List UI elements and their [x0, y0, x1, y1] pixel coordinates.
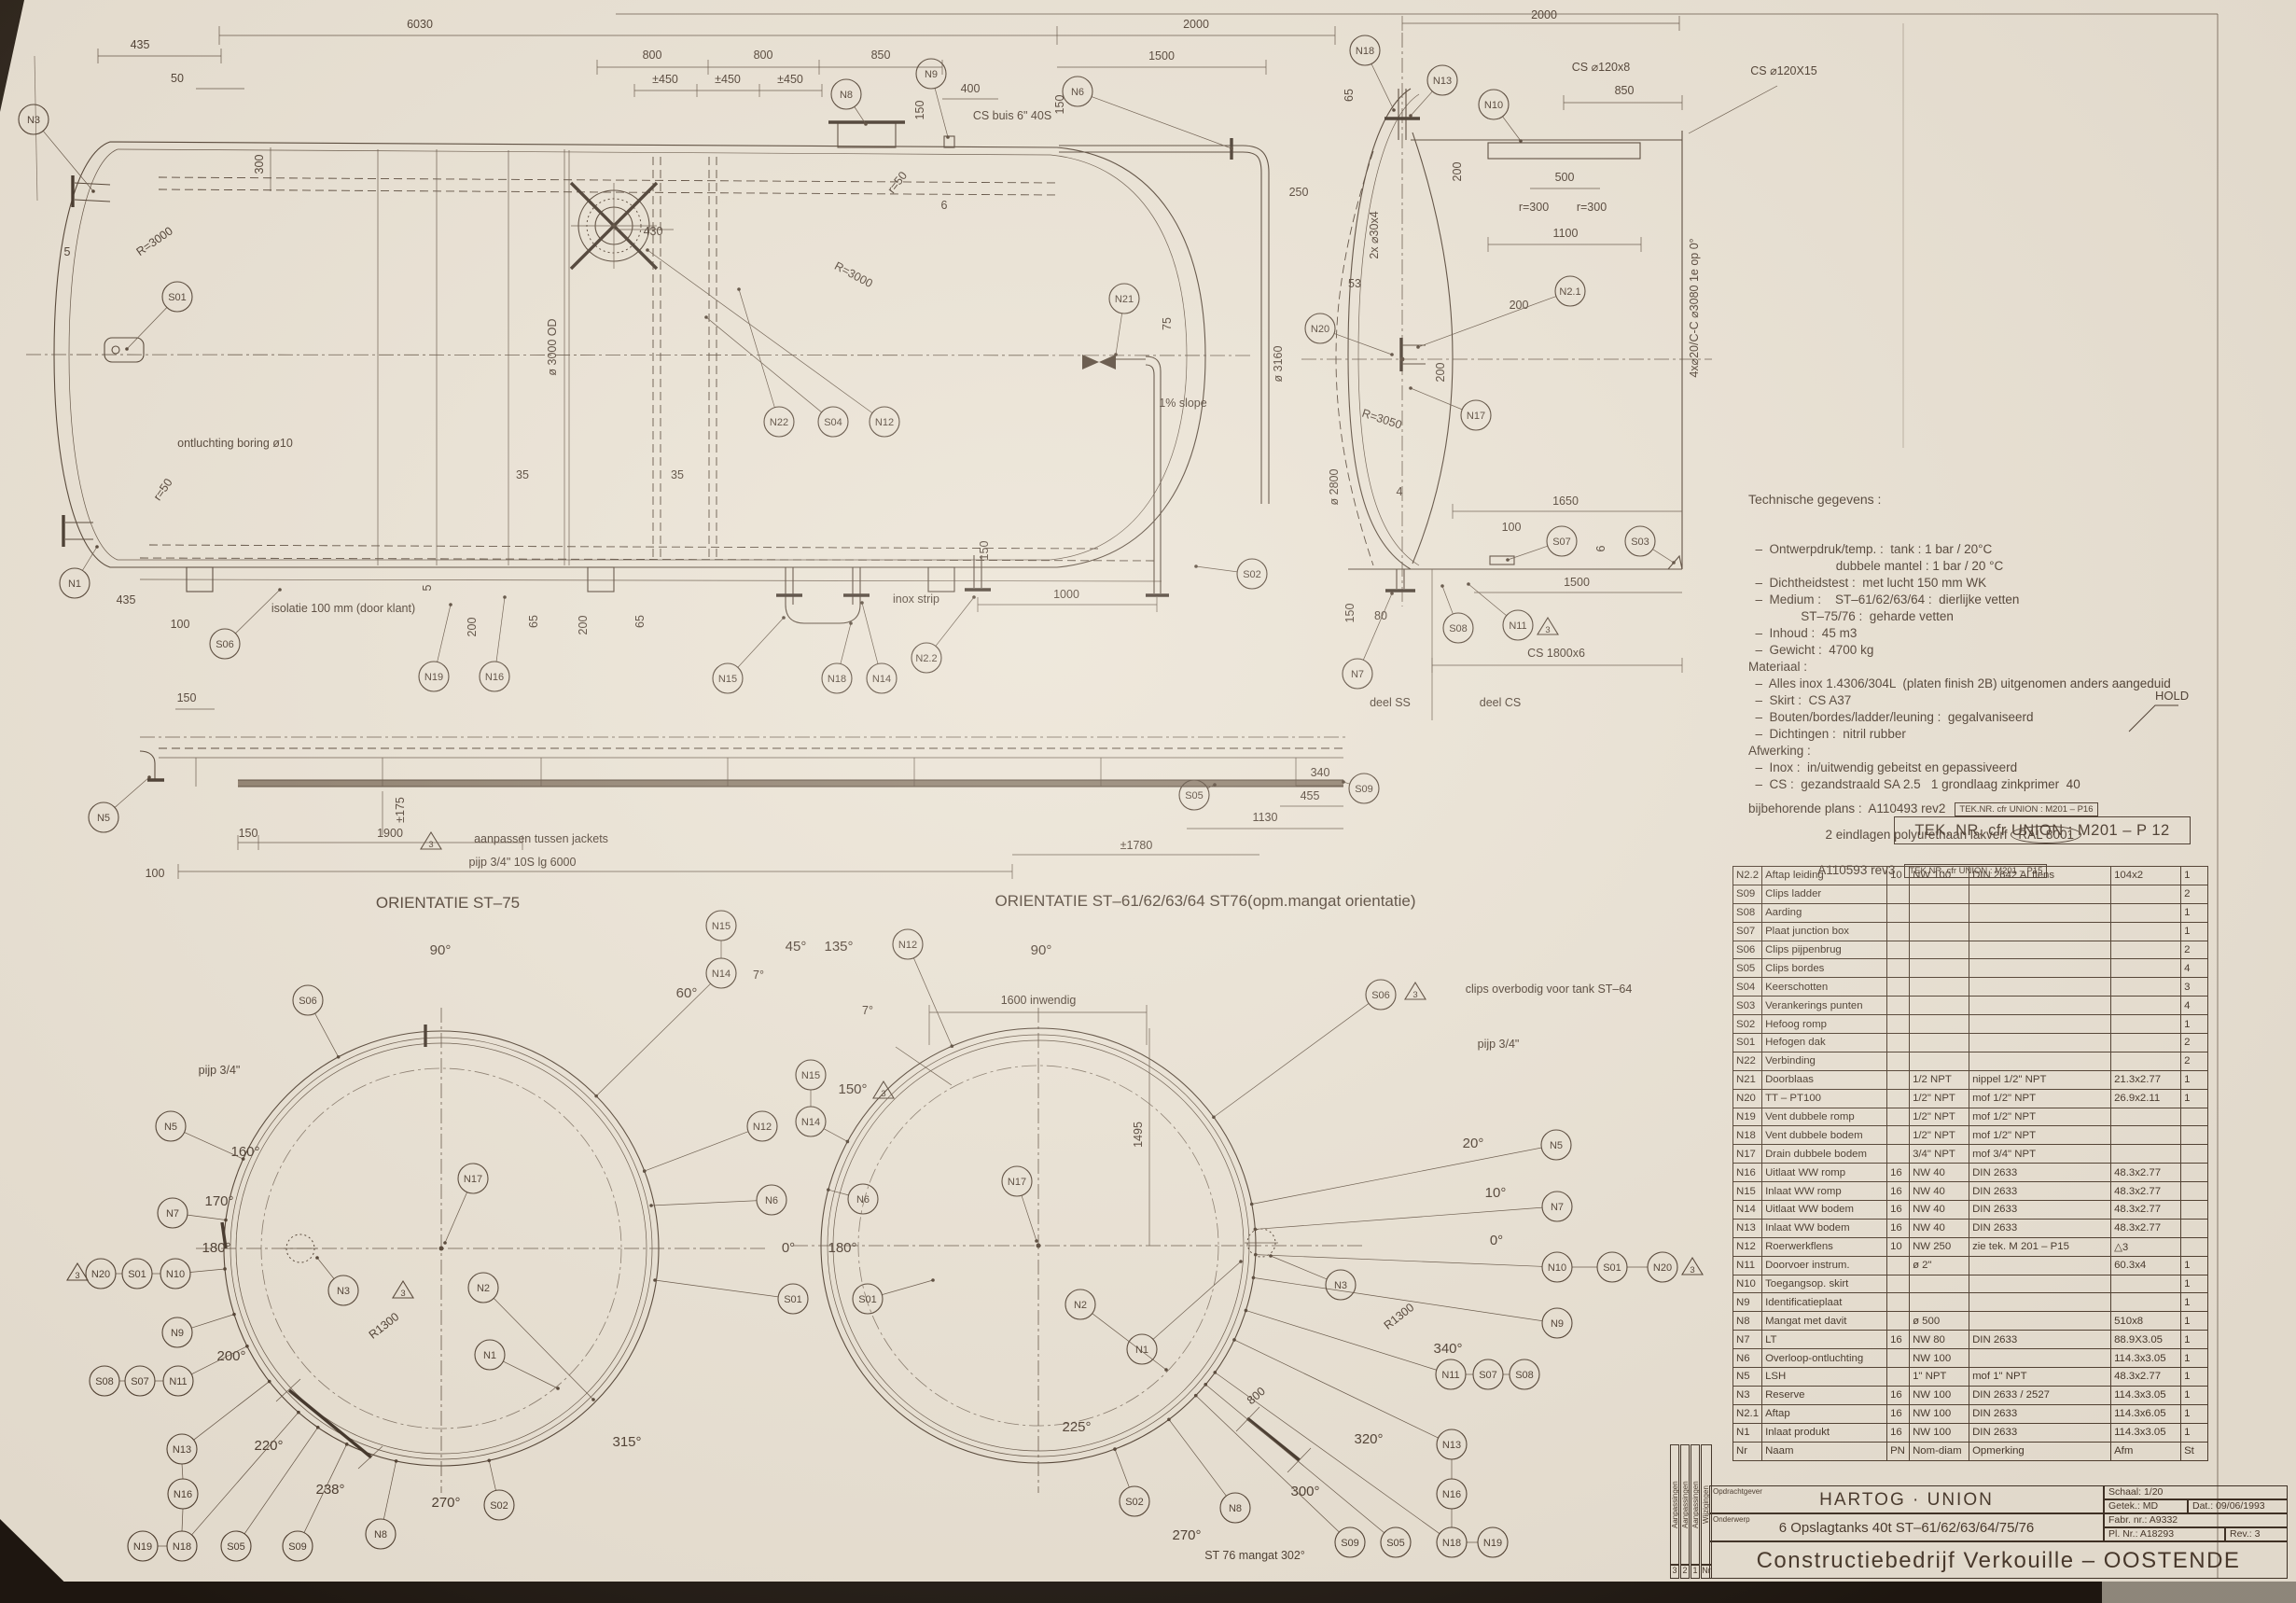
- table-cell: 1: [2181, 1256, 2208, 1275]
- table-cell: Inlaat WW bodem: [1762, 1219, 1887, 1237]
- callout-label: S09: [1355, 784, 1373, 795]
- dim-label: 800: [754, 49, 773, 62]
- leader-line: [841, 623, 851, 663]
- notes-line: dubbele mantel : 1 bar / 20 °C: [1748, 558, 2219, 575]
- leader-dot: [827, 1188, 830, 1192]
- table-cell: nippel 1/2" NPT: [1969, 1070, 2111, 1089]
- dim-label: aanpassen tussen jackets: [474, 832, 608, 845]
- table-cell: 1: [2181, 922, 2208, 941]
- callout-label: S09: [288, 1541, 307, 1553]
- table-cell: [1887, 1349, 1910, 1368]
- revision-triangle-digit: 3: [881, 1089, 885, 1099]
- dim-label: 200: [466, 618, 479, 637]
- table-cell: zie tek. M 201 – P15: [1969, 1237, 2111, 1256]
- table-cell: [1969, 1312, 2111, 1331]
- table-row: S07Plaat junction box1: [1733, 922, 2208, 941]
- dim-label: r=50: [885, 169, 911, 196]
- leader-dot: [125, 347, 129, 351]
- dim-label: R=3000: [832, 259, 875, 290]
- table-cell: mof 1/2" NPT: [1969, 1108, 2111, 1126]
- table-cell: [2111, 903, 2181, 922]
- dim-label: 500: [1555, 171, 1575, 184]
- leader-dot: [223, 1267, 227, 1271]
- leader-dot: [1213, 783, 1217, 787]
- leader-line: [1256, 1255, 1542, 1267]
- dim-label: 850: [871, 49, 891, 62]
- table-row: N7LT16NW 80DIN 263388.9X3.051: [1733, 1331, 2208, 1349]
- leader-dot: [649, 1204, 653, 1207]
- table-cell: Roerwerkflens: [1762, 1237, 1887, 1256]
- bottom-pipe-strip-view: [140, 709, 1348, 879]
- dim-label: ø 3160: [1272, 345, 1285, 382]
- manhole-n8: [838, 123, 896, 147]
- dim-label: 150: [978, 541, 991, 561]
- leader-dot: [1390, 353, 1394, 356]
- table-cell: PN: [1887, 1442, 1910, 1460]
- table-cell: 16: [1887, 1404, 1910, 1423]
- leader-line: [1334, 333, 1392, 355]
- leader-dot: [643, 1169, 647, 1173]
- table-cell: N3: [1733, 1386, 1762, 1404]
- dim-label: 65: [1343, 89, 1356, 102]
- dim-label: ø 3000 OD: [546, 318, 559, 375]
- leader-line: [192, 1413, 299, 1535]
- table-cell: 1/2" NPT: [1910, 1089, 1969, 1108]
- table-cell: N1: [1733, 1423, 1762, 1442]
- table-cell: [1887, 959, 1910, 978]
- main-side-view: [26, 26, 1335, 623]
- leader-line: [1196, 566, 1237, 572]
- callout-label: S08: [1515, 1370, 1534, 1381]
- table-cell: DIN 2633: [1969, 1423, 2111, 1442]
- revision-triangle-digit: 3: [1412, 990, 1417, 1000]
- callout-label: N16: [485, 672, 504, 683]
- leader-line: [1196, 1396, 1340, 1532]
- table-cell: [1969, 885, 2111, 903]
- dim-label: deel SS: [1370, 696, 1411, 709]
- table-cell: N17: [1733, 1145, 1762, 1164]
- table-cell: Uitlaat WW bodem: [1762, 1201, 1887, 1220]
- leader-dot: [1194, 565, 1198, 568]
- notes-line: ST–75/76 : geharde vetten: [1748, 608, 2219, 625]
- callout-label: N12: [875, 417, 894, 428]
- table-cell: S03: [1733, 997, 1762, 1015]
- table-cell: Aftap: [1762, 1404, 1887, 1423]
- callout-label: N7: [1351, 669, 1364, 680]
- table-cell: N2.2: [1733, 867, 1762, 885]
- table-cell: Identificatieplaat: [1762, 1293, 1887, 1312]
- dim-label: 1500: [1148, 49, 1175, 63]
- table-cell: [2181, 1237, 2208, 1256]
- dim-label: 435: [117, 593, 136, 606]
- table-cell: [1969, 922, 2111, 941]
- table-cell: ø 2": [1910, 1256, 1969, 1275]
- table-cell: [2111, 1015, 2181, 1034]
- dim-label: 320°: [1354, 1431, 1383, 1447]
- table-cell: N13: [1733, 1219, 1762, 1237]
- table-cell: NW 100: [1910, 1404, 1969, 1423]
- table-cell: Hefoog romp: [1762, 1015, 1887, 1034]
- leader-line: [1115, 1449, 1129, 1487]
- table-cell: N6: [1733, 1349, 1762, 1368]
- callout-label: N1: [483, 1350, 496, 1361]
- leader-line: [1652, 550, 1674, 563]
- dim-label: 270°: [1172, 1527, 1201, 1543]
- callout-label: N21: [1115, 294, 1134, 305]
- notes-line: – Alles inox 1.4306/304L (platen finish …: [1748, 676, 2219, 692]
- table-cell: [2111, 997, 2181, 1015]
- dim-label: ±450: [715, 73, 741, 86]
- table-cell: 114.3x6.05: [2111, 1404, 2181, 1423]
- table-cell: 1/2" NPT: [1910, 1126, 1969, 1145]
- dim-label: 250: [1289, 186, 1309, 199]
- dim-label: 2000: [1183, 18, 1209, 31]
- dim-label: 0°: [782, 1240, 795, 1256]
- callout-label: N18: [1356, 46, 1374, 57]
- table-cell: S07: [1733, 922, 1762, 941]
- table-cell: [1969, 1052, 2111, 1070]
- callout-label: N3: [27, 115, 40, 126]
- dim-label: 400: [961, 82, 981, 95]
- table-cell: 60.3x4: [2111, 1256, 2181, 1275]
- dim-label: R=3000: [134, 224, 175, 258]
- dim-label: 1130: [1253, 811, 1278, 824]
- table-cell: [1910, 978, 1969, 997]
- dim-label: 6: [941, 199, 948, 212]
- dim-label: CS 1800x6: [1527, 647, 1585, 660]
- leader-dot: [1342, 780, 1345, 784]
- leader-line: [655, 1280, 778, 1297]
- leader-line: [647, 250, 872, 413]
- leader-line: [190, 1269, 225, 1273]
- dim-label: 170°: [204, 1193, 233, 1209]
- callout-label: N6: [856, 1194, 870, 1206]
- callout-label: S06: [1371, 990, 1390, 1001]
- table-cell: 1: [2181, 1070, 2208, 1089]
- table-row: NrNaamPNNom-diamOpmerkingAfmSt: [1733, 1442, 2208, 1460]
- callout-label: N15: [801, 1070, 820, 1081]
- dim-label: 5: [421, 584, 434, 591]
- table-cell: Toegangsop. skirt: [1762, 1275, 1887, 1293]
- dim-label: pijp 3/4": [199, 1064, 241, 1077]
- table-cell: [1910, 997, 1969, 1015]
- scan-corner-bottom-left: [0, 1519, 86, 1603]
- table-cell: 16: [1887, 1423, 1910, 1442]
- table-cell: N15: [1733, 1182, 1762, 1201]
- ww-u-pipe: [776, 567, 870, 623]
- rev-row-number: 2: [1680, 1565, 1690, 1579]
- dim-label: 65: [633, 615, 647, 628]
- callout-label: N15: [718, 674, 737, 685]
- table-cell: [1910, 941, 1969, 959]
- table-cell: [1887, 1070, 1910, 1089]
- leader-dot: [1409, 386, 1412, 390]
- callout-label: S01: [1603, 1262, 1621, 1274]
- leader-dot: [91, 189, 95, 193]
- dim-label: ontluchting boring ø10: [177, 437, 293, 450]
- table-cell: Clips pijpenbrug: [1762, 941, 1887, 959]
- plan-box-1: TEK.NR. cfr UNION : M201 – P16: [1955, 802, 2097, 816]
- leader-dot: [449, 603, 452, 606]
- dim-label: 60°: [676, 985, 698, 1001]
- leader-line: [188, 1215, 226, 1220]
- dim-label: 35: [671, 468, 684, 481]
- table-cell: 1: [2181, 1312, 2208, 1331]
- table-cell: 1: [2181, 1368, 2208, 1387]
- leader-dot: [487, 1458, 491, 1462]
- table-cell: 16: [1887, 1219, 1910, 1237]
- leader-line: [496, 597, 505, 662]
- callout-label: N18: [828, 674, 846, 685]
- table-cell: [1910, 1015, 1969, 1034]
- table-cell: [1910, 959, 1969, 978]
- table-cell: [1969, 1256, 2111, 1275]
- leader-dot: [946, 135, 950, 139]
- table-row: N11Doorvoer instrum.ø 2"60.3x41: [1733, 1256, 2208, 1275]
- dim-label: 53: [1348, 277, 1361, 290]
- table-cell: S02: [1733, 1015, 1762, 1034]
- leader-dot: [1245, 1309, 1248, 1313]
- table-cell: DIN 2633 / 2527: [1969, 1386, 2111, 1404]
- callout-label: N3: [1334, 1280, 1347, 1291]
- leader-dot: [1035, 1239, 1038, 1243]
- leader-line: [1468, 584, 1507, 616]
- section-end-view: [1301, 16, 1777, 720]
- dim-label: 80: [1374, 609, 1387, 622]
- table-cell: [1887, 1089, 1910, 1108]
- dim-label: 200: [1451, 162, 1464, 182]
- callout-label: S03: [1631, 537, 1649, 548]
- table-row: S04Keerschotten3: [1733, 978, 2208, 997]
- dim-label: 0°: [1490, 1233, 1503, 1248]
- table-cell: Vent dubbele bodem: [1762, 1126, 1887, 1145]
- leader-line: [315, 1013, 339, 1057]
- dim-label: 75: [1161, 317, 1174, 330]
- leader-dot: [951, 1044, 954, 1048]
- leader-dot: [147, 775, 151, 779]
- callout-label: N5: [1550, 1140, 1563, 1151]
- leader-line: [651, 1201, 757, 1206]
- table-row: N13Inlaat WW bodem16NW 40DIN 263348.3x2.…: [1733, 1219, 2208, 1237]
- dim-label: 160°: [230, 1144, 259, 1160]
- dim-label: 455: [1301, 789, 1320, 802]
- table-cell: N21: [1733, 1070, 1762, 1089]
- table-cell: [1910, 1034, 1969, 1052]
- table-cell: Uitlaat WW romp: [1762, 1164, 1887, 1182]
- leader-dot: [849, 621, 853, 625]
- table-row: N9Identificatieplaat1: [1733, 1293, 2208, 1312]
- table-cell: Aarding: [1762, 903, 1887, 922]
- dim-label: 100: [1502, 521, 1522, 534]
- table-cell: 114.3x3.05: [2111, 1349, 2181, 1368]
- table-cell: [1887, 885, 1910, 903]
- callout-label: N14: [712, 969, 731, 980]
- table-cell: [1887, 941, 1910, 959]
- table-cell: 1: [2181, 1089, 2208, 1108]
- leader-dot: [1113, 1447, 1117, 1451]
- dim-label: r=300: [1519, 201, 1549, 214]
- callout-label: N13: [1442, 1440, 1461, 1451]
- table-cell: N7: [1733, 1331, 1762, 1349]
- table-cell: N16: [1733, 1164, 1762, 1182]
- table-cell: NW 40: [1910, 1164, 1969, 1182]
- callout-label: S02: [1125, 1497, 1144, 1508]
- table-cell: 1: [2181, 867, 2208, 885]
- table-row: N2.1Aftap16NW 100DIN 2633114.3x6.051: [1733, 1404, 2208, 1423]
- callout-label: S07: [1552, 537, 1571, 548]
- leader-dot: [1213, 1371, 1217, 1374]
- callout-label: N1: [1135, 1345, 1148, 1356]
- table-cell: 48.3x2.77: [2111, 1182, 2181, 1201]
- dim-label: 238°: [315, 1482, 344, 1498]
- company-name: Constructiebedrijf Verkouille – OOSTENDE: [1710, 1542, 2287, 1580]
- leader-dot: [782, 616, 786, 620]
- table-row: N15Inlaat WW romp16NW 40DIN 263348.3x2.7…: [1733, 1182, 2208, 1201]
- callout-label: S01: [858, 1294, 877, 1305]
- table-cell: 1/2 NPT: [1910, 1070, 1969, 1089]
- table-cell: [2111, 885, 2181, 903]
- callout-label: N18: [1442, 1538, 1461, 1549]
- dim-label: 225°: [1062, 1419, 1091, 1435]
- table-cell: LSH: [1762, 1368, 1887, 1387]
- dim-label: 430: [644, 225, 663, 238]
- callout-label: S07: [131, 1376, 149, 1387]
- leader-line: [1442, 586, 1453, 614]
- table-cell: 114.3x3.05: [2111, 1386, 2181, 1404]
- opdrachtgever-label: Opdrachtgever: [1713, 1487, 1762, 1496]
- table-cell: St: [2181, 1442, 2208, 1460]
- callout-label: N6: [1071, 87, 1084, 98]
- table-cell: 1: [2181, 903, 2208, 922]
- scan-edge-bottom-right: [2102, 1582, 2296, 1603]
- table-cell: [2111, 1145, 2181, 1164]
- leader-dot: [1250, 1203, 1254, 1206]
- dim-label: 200: [577, 616, 590, 635]
- leader-line: [1363, 593, 1392, 660]
- table-cell: [1887, 978, 1910, 997]
- table-cell: LT: [1762, 1331, 1887, 1349]
- table-cell: Overloop-ontluchting: [1762, 1349, 1887, 1368]
- table-cell: N18: [1733, 1126, 1762, 1145]
- table-cell: mof 1/2" NPT: [1969, 1126, 2111, 1145]
- table-row: N5LSH1" NPTmof 1" NPT48.3x2.771: [1733, 1368, 2208, 1387]
- table-cell: mof 3/4" NPT: [1969, 1145, 2111, 1164]
- rev-row-number: 1: [1691, 1565, 1700, 1579]
- table-cell: 16: [1887, 1164, 1910, 1182]
- callout-label: N20: [1653, 1262, 1672, 1274]
- dim-label: 200: [1434, 363, 1447, 383]
- table-cell: [1887, 1256, 1910, 1275]
- table-cell: 10: [1887, 867, 1910, 885]
- table-cell: S05: [1733, 959, 1762, 978]
- leader-dot: [95, 545, 99, 549]
- table-cell: [1969, 959, 2111, 978]
- dim-label: 2x ⌀30x4: [1368, 211, 1381, 258]
- leader-dot: [704, 315, 708, 319]
- table-cell: [1887, 1015, 1910, 1034]
- table-cell: [2111, 1034, 2181, 1052]
- callout-label: S01: [168, 292, 187, 303]
- table-cell: [1887, 1034, 1910, 1052]
- dim-label: ø 2800: [1328, 468, 1341, 505]
- revision-triangle-digit: 3: [1545, 625, 1550, 635]
- table-cell: [1887, 1293, 1910, 1312]
- table-row: N12Roerwerkflens10NW 250zie tek. M 201 –…: [1733, 1237, 2208, 1256]
- leader-dot: [860, 601, 864, 605]
- callout-label: N12: [753, 1122, 772, 1133]
- dim-label: 300: [253, 155, 266, 174]
- table-cell: [1887, 1126, 1910, 1145]
- leader-dot: [242, 1157, 245, 1161]
- leader-dot: [297, 1411, 300, 1415]
- table-cell: N10: [1733, 1275, 1762, 1293]
- leader-line: [738, 618, 784, 667]
- dim-label: 45°: [786, 939, 807, 955]
- leader-line: [127, 308, 167, 349]
- notes-line: – Gewicht : 4700 kg: [1748, 642, 2219, 659]
- table-cell: NW 40: [1910, 1219, 1969, 1237]
- table-cell: 16: [1887, 1182, 1910, 1201]
- table-row: N16Uitlaat WW romp16NW 40DIN 263348.3x2.…: [1733, 1164, 2208, 1182]
- callout-label: S08: [95, 1376, 114, 1387]
- dim-label: deel CS: [1480, 696, 1521, 709]
- callout-label: N8: [374, 1529, 387, 1540]
- dim-label: 270°: [431, 1495, 460, 1511]
- notes-title: Technische gegevens :: [1748, 491, 2219, 508]
- table-cell: [1887, 922, 1910, 941]
- dim-label: 340°: [1433, 1341, 1462, 1357]
- table-cell: Doorvoer instrum.: [1762, 1256, 1887, 1275]
- dim-label: 435: [131, 38, 150, 51]
- table-cell: DIN 2633: [1969, 1182, 2111, 1201]
- dim-label: 150: [1343, 604, 1357, 623]
- leader-dot: [1194, 1394, 1198, 1398]
- leader-dot: [556, 1387, 560, 1390]
- leader-line: [936, 597, 974, 646]
- table-cell: NW 250: [1910, 1237, 1969, 1256]
- dim-label: 6030: [407, 18, 433, 31]
- table-cell: 1" NPT: [1910, 1368, 1969, 1387]
- dim-label: ±450: [777, 73, 803, 86]
- table-cell: [2181, 1201, 2208, 1220]
- notes-line: – Medium : ST–61/62/63/64 : dierlijke ve…: [1748, 592, 2219, 608]
- callout-label: N5: [97, 813, 110, 824]
- leader-dot: [1409, 114, 1412, 118]
- dim-label: 150: [913, 101, 926, 120]
- table-cell: 1: [2181, 1293, 2208, 1312]
- table-cell: Clips bordes: [1762, 959, 1887, 978]
- table-row: N22Verbinding2: [1733, 1052, 2208, 1070]
- dim-label: 220°: [254, 1438, 283, 1454]
- plan-line-1: bijbehorende plans : A110493 rev2: [1748, 801, 1945, 815]
- callout-label: N14: [801, 1117, 820, 1128]
- table-cell: [1887, 1052, 1910, 1070]
- leader-dot: [316, 1426, 320, 1429]
- table-cell: N2.1: [1733, 1404, 1762, 1423]
- bubble-chain-links: [116, 941, 1648, 1546]
- leader-dot: [345, 1443, 349, 1446]
- table-cell: [1969, 978, 2111, 997]
- table-cell: 21.3x2.77: [2111, 1070, 2181, 1089]
- callout-label: N2: [1074, 1300, 1087, 1311]
- leader-dot: [972, 595, 976, 599]
- tek-nr-box: TEK. NR. cfr UNION : M201 – P 12: [1894, 816, 2191, 844]
- leader-dot: [1232, 1338, 1236, 1342]
- callout-label: S02: [490, 1500, 508, 1512]
- callout-label: S09: [1341, 1538, 1359, 1549]
- leader-line: [1169, 1419, 1226, 1496]
- dim-label: 10°: [1485, 1185, 1507, 1201]
